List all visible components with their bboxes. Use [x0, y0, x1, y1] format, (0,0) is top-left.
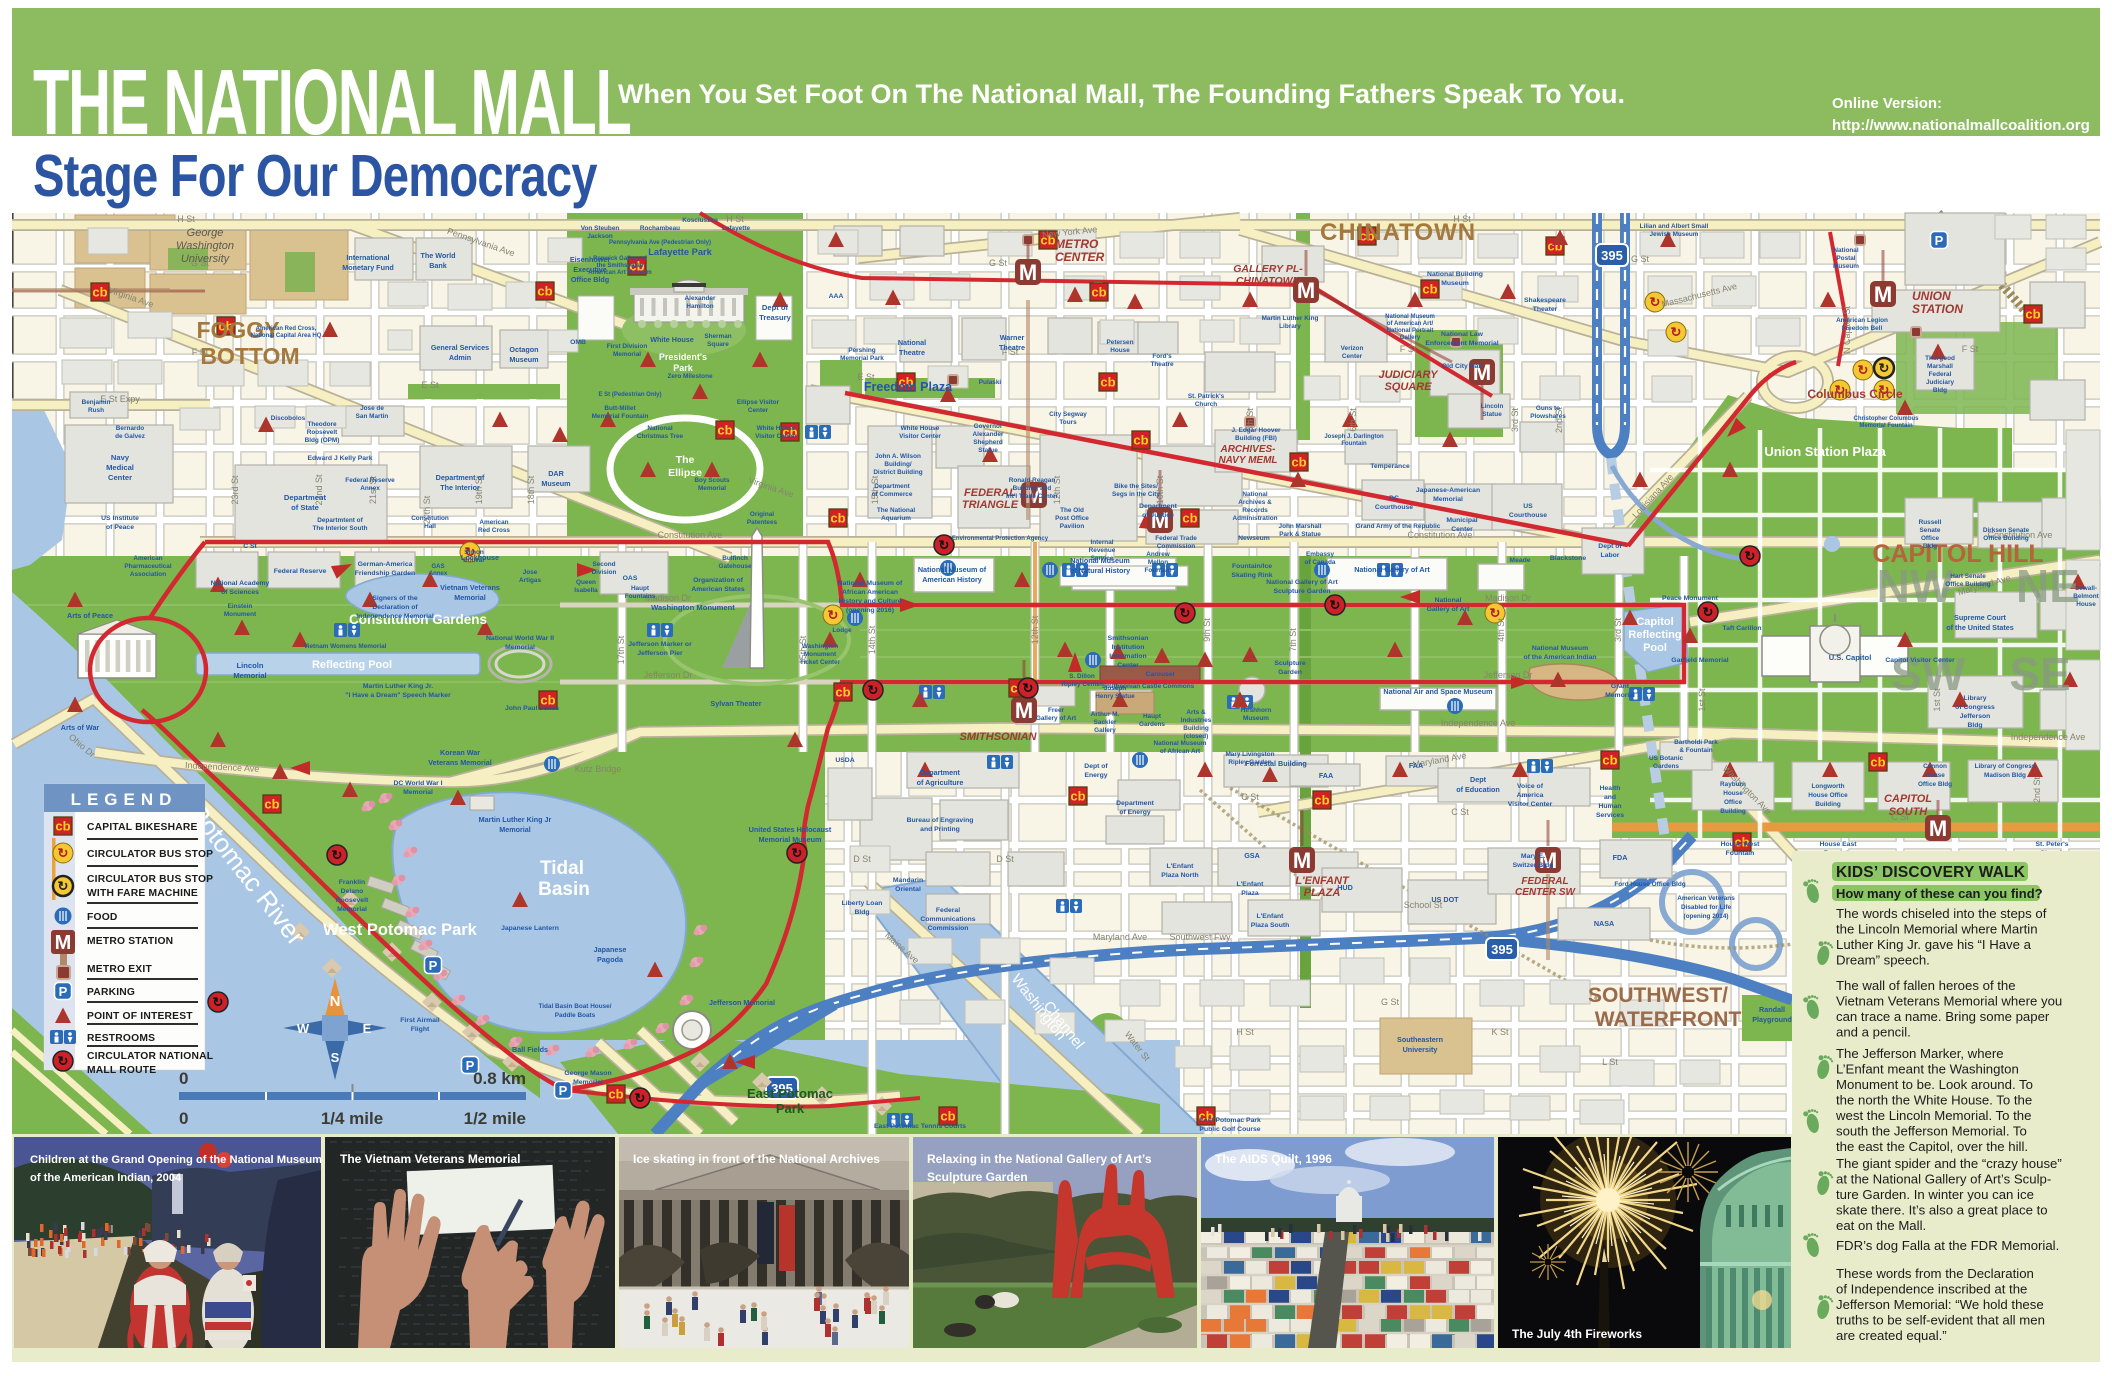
svg-text:Constitution Ave: Constitution Ave	[658, 530, 723, 540]
svg-text:Hall: Hall	[424, 523, 436, 530]
svg-text:Judiciary: Judiciary	[1926, 379, 1955, 386]
svg-text:House: House	[1723, 790, 1743, 797]
svg-text:CENTER SW: CENTER SW	[1515, 887, 1577, 898]
svg-text:Hart Senate: Hart Senate	[1950, 573, 1986, 580]
svg-text:John A. Wilson: John A. Wilson	[875, 453, 921, 460]
svg-text:F St: F St	[192, 347, 209, 357]
svg-text:Independence Ave: Independence Ave	[1441, 718, 1515, 728]
svg-text:Octagon: Octagon	[509, 345, 538, 354]
svg-text:Washington: Washington	[176, 240, 234, 252]
svg-text:Ford House Office Bldg: Ford House Office Bldg	[1614, 881, 1685, 888]
svg-text:Plaza North: Plaza North	[1161, 872, 1198, 879]
svg-text:Gallery: Gallery	[1400, 335, 1421, 341]
svg-text:Flight: Flight	[411, 1026, 430, 1033]
svg-text:23rd St: 23rd St	[230, 475, 240, 505]
svg-text:K St: K St	[1491, 1027, 1509, 1037]
svg-text:The Jefferson Marker, where: The Jefferson Marker, where	[1836, 1046, 2004, 1061]
svg-text:C St: C St	[243, 543, 257, 550]
svg-text:H St: H St	[1236, 1027, 1254, 1037]
svg-text:BOTTOM: BOTTOM	[200, 343, 299, 369]
svg-text:Bldg: Bldg	[1933, 387, 1947, 394]
svg-text:Mary Livingston: Mary Livingston	[1225, 751, 1274, 758]
svg-text:2nd St: 2nd St	[2032, 776, 2042, 803]
svg-text:Disabled for Life: Disabled for Life	[1681, 904, 1732, 911]
svg-text:Embassy: Embassy	[1306, 551, 1335, 558]
svg-text:Children at the Grand Opening: Children at the Grand Opening of the Nat…	[30, 1154, 322, 1166]
svg-text:Pershing: Pershing	[848, 347, 875, 354]
svg-text:Delano: Delano	[341, 888, 364, 895]
svg-text:Pennsylvania Ave (Pedestrian O: Pennsylvania Ave (Pedestrian Only)	[609, 240, 711, 246]
svg-text:Memorial: Memorial	[233, 671, 266, 680]
svg-text:Medical: Medical	[106, 463, 134, 472]
svg-text:FAA: FAA	[1319, 771, 1333, 780]
svg-text:Memorial: Memorial	[505, 644, 535, 651]
svg-text:Theodore: Theodore	[307, 421, 337, 428]
svg-text:GAS: GAS	[431, 564, 444, 570]
svg-text:Service: Service	[1091, 555, 1114, 562]
svg-text:Joseph J. Darlington: Joseph J. Darlington	[1324, 434, 1384, 440]
svg-text:C St: C St	[1891, 812, 1909, 822]
svg-text:SW: SW	[1891, 648, 1966, 700]
svg-text:DAR: DAR	[548, 469, 564, 478]
svg-text:Ripley Garden: Ripley Garden	[1228, 759, 1271, 766]
svg-text:Building: Building	[1720, 808, 1746, 815]
svg-text:George Mason: George Mason	[564, 1070, 611, 1077]
svg-text:National: National	[1435, 597, 1462, 604]
svg-text:Lincoln: Lincoln	[1481, 403, 1504, 410]
svg-text:Second: Second	[592, 561, 615, 568]
svg-text:Dream” speech.: Dream” speech.	[1836, 953, 1930, 968]
svg-text:Park: Park	[776, 1101, 805, 1116]
svg-text:The World: The World	[420, 251, 455, 260]
svg-text:Sewall-: Sewall-	[2075, 585, 2097, 592]
svg-text:Visitor Center: Visitor Center	[899, 433, 941, 440]
svg-text:Playground: Playground	[1752, 1015, 1792, 1024]
svg-text:Freedom Bell: Freedom Bell	[1842, 325, 1883, 332]
svg-text:First Airmail: First Airmail	[400, 1017, 440, 1024]
svg-text:Arts of War: Arts of War	[61, 723, 100, 732]
svg-text:E: E	[363, 1021, 372, 1036]
svg-text:Pulaski: Pulaski	[979, 379, 1002, 386]
svg-text:Vietnam Veterans Memorial wher: Vietnam Veterans Memorial where you	[1836, 994, 2062, 1009]
svg-text:National Museum: National Museum	[1154, 740, 1207, 747]
svg-text:City Segway: City Segway	[1049, 411, 1087, 418]
svg-text:The AIDS Quilt, 1996: The AIDS Quilt, 1996	[1215, 1152, 1332, 1166]
svg-text:Visitor Center: Visitor Center	[755, 433, 797, 440]
svg-text:John Marshall: John Marshall	[1279, 523, 1322, 530]
svg-text:Post Office: Post Office	[1055, 515, 1089, 522]
svg-text:Bldg: Bldg	[854, 909, 869, 916]
svg-text:Office: Office	[1724, 799, 1743, 806]
svg-text:American Red Cross,: American Red Cross,	[256, 326, 317, 332]
svg-text:J. Edgar Hoover: J. Edgar Hoover	[1231, 427, 1281, 434]
svg-text:University: University	[1403, 1045, 1438, 1054]
svg-text:Bartholdi Park: Bartholdi Park	[1674, 739, 1718, 746]
svg-text:The giant spider and the “craz: The giant spider and the “crazy house”	[1836, 1156, 2062, 1171]
svg-text:Museum: Museum	[509, 355, 538, 364]
svg-text:of Congress: of Congress	[1955, 704, 1995, 711]
svg-text:Building: Building	[1183, 725, 1209, 732]
svg-text:Einstein: Einstein	[228, 603, 253, 610]
svg-text:STATION: STATION	[1912, 302, 1963, 316]
svg-text:JUDICIARY: JUDICIARY	[1378, 369, 1439, 381]
svg-text:Statue: Statue	[978, 447, 998, 454]
svg-text:CIRCULATOR NATIONAL: CIRCULATOR NATIONAL	[87, 1051, 213, 1062]
svg-text:of Peace: of Peace	[106, 524, 134, 531]
svg-text:POINT OF INTEREST: POINT OF INTEREST	[87, 1011, 193, 1022]
svg-text:Office Bldg: Office Bldg	[1918, 781, 1952, 788]
svg-text:and Printing: and Printing	[920, 826, 960, 833]
svg-text:Grand Army of the Republic: Grand Army of the Republic	[1356, 523, 1441, 530]
svg-text:Bolivar: Bolivar	[463, 557, 485, 564]
svg-text:Bank: Bank	[429, 261, 447, 270]
svg-text:General Services: General Services	[431, 343, 489, 352]
svg-text:GALLERY PL-: GALLERY PL-	[1233, 263, 1303, 275]
svg-text:SOUTHWEST/: SOUTHWEST/	[1588, 984, 1728, 1007]
svg-text:M: M	[55, 932, 72, 954]
svg-text:US Institute: US Institute	[101, 515, 139, 522]
svg-text:Andrew: Andrew	[1146, 551, 1169, 558]
svg-text:Bldg (OPM): Bldg (OPM)	[305, 437, 340, 444]
svg-text:Arts &: Arts &	[1186, 709, 1206, 716]
svg-text:House: House	[1925, 772, 1945, 779]
svg-text:0: 0	[179, 1109, 188, 1128]
svg-text:Office Bldg: Office Bldg	[571, 275, 609, 284]
svg-text:The words chiseled into the st: The words chiseled into the steps of	[1836, 906, 2047, 921]
svg-text:The: The	[676, 454, 695, 466]
svg-text:Federal Trade: Federal Trade	[1155, 535, 1197, 542]
svg-text:Declaration of: Declaration of	[372, 604, 418, 611]
svg-text:NASA: NASA	[1594, 919, 1614, 928]
svg-text:Memorial: Memorial	[698, 485, 726, 492]
svg-text:Federal Reserve: Federal Reserve	[345, 477, 395, 484]
svg-text:at the National Gallery of Art: at the National Gallery of Art’s Sculp-	[1836, 1172, 2051, 1187]
svg-text:Garden: Garden	[1278, 669, 1302, 676]
svg-text:Simon: Simon	[464, 549, 484, 556]
svg-text:Center: Center	[1451, 526, 1473, 533]
svg-text:L’Enfant meant the Washington: L’Enfant meant the Washington	[1836, 1062, 2019, 1077]
svg-text:Dept of: Dept of	[1598, 543, 1622, 550]
svg-text:Henry Statue: Henry Statue	[1095, 693, 1135, 700]
svg-text:Revenue: Revenue	[1089, 547, 1116, 554]
svg-text:Theatre: Theatre	[1150, 361, 1174, 368]
svg-text:Bldg: Bldg	[1923, 543, 1937, 550]
svg-text:Union Station Plaza: Union Station Plaza	[1764, 444, 1886, 459]
svg-text:0: 0	[179, 1069, 188, 1088]
svg-text:Dept: Dept	[1470, 775, 1487, 784]
svg-text:Relaxing in the National Galle: Relaxing in the National Gallery of Art’…	[927, 1152, 1152, 1166]
svg-text:Services: Services	[1596, 812, 1624, 819]
svg-text:San Martin: San Martin	[356, 413, 389, 420]
svg-text:African American: African American	[842, 589, 898, 596]
svg-text:Martin Luther King Jr.: Martin Luther King Jr.	[363, 683, 433, 690]
svg-text:Sylvan Theater: Sylvan Theater	[710, 699, 761, 708]
svg-text:CIRCULATOR BUS STOP: CIRCULATOR BUS STOP	[87, 849, 213, 860]
svg-text:THE NATIONAL MALL: THE NATIONAL MALL	[33, 49, 631, 154]
svg-text:Peace Monument: Peace Monument	[1662, 595, 1719, 602]
svg-text:First Division: First Division	[607, 343, 648, 350]
svg-text:Tidal Basin Boat House/: Tidal Basin Boat House/	[538, 1003, 611, 1010]
svg-text:Martin Luther King: Martin Luther King	[1262, 315, 1319, 322]
svg-text:USDA: USDA	[835, 757, 854, 764]
svg-text:E St: E St	[857, 372, 875, 382]
svg-text:(opening 2016): (opening 2016)	[846, 607, 894, 614]
svg-text:National Gallery of Art: National Gallery of Art	[1266, 579, 1338, 586]
svg-text:Kutz Bridge: Kutz Bridge	[575, 764, 622, 774]
svg-text:Plaza South: Plaza South	[1251, 922, 1290, 929]
svg-text:East Potomac: East Potomac	[747, 1086, 833, 1101]
svg-text:Haupt: Haupt	[631, 585, 650, 592]
svg-text:St. Patrick's: St. Patrick's	[1188, 393, 1225, 400]
svg-text:12th St: 12th St	[1030, 615, 1040, 644]
svg-text:House: House	[2076, 601, 2096, 608]
svg-text:St. Peter's: St. Peter's	[2036, 841, 2069, 848]
svg-text:House West: House West	[1721, 841, 1761, 848]
svg-text:U.S. Capitol: U.S. Capitol	[1829, 653, 1872, 662]
svg-text:WATERFRONT: WATERFRONT	[1595, 1008, 1742, 1031]
svg-text:METRO: METRO	[1055, 237, 1099, 251]
svg-text:S. Dillon: S. Dillon	[1069, 673, 1095, 680]
svg-text:The Old: The Old	[1060, 507, 1084, 514]
svg-text:E St (Pedestrian Only): E St (Pedestrian Only)	[598, 392, 661, 398]
svg-text:Museum: Museum	[541, 479, 570, 488]
svg-text:Department: Department	[1139, 503, 1178, 510]
svg-text:Switzer Bldg: Switzer Bldg	[1513, 862, 1554, 869]
svg-text:Lincoln: Lincoln	[237, 661, 264, 670]
svg-text:National Gallery of Art: National Gallery of Art	[1354, 565, 1430, 574]
svg-text:Madison Bldg: Madison Bldg	[1984, 772, 2026, 779]
svg-text:Mandarin: Mandarin	[893, 877, 923, 884]
svg-text:WITH FARE MACHINE: WITH FARE MACHINE	[87, 888, 198, 899]
svg-text:President's: President's	[659, 352, 707, 362]
svg-text:G St: G St	[1631, 254, 1650, 264]
svg-text:ture Garden. In winter you ca: ture Garden. In winter you can ice	[1836, 1187, 2034, 1202]
svg-text:Pavilion: Pavilion	[1060, 523, 1085, 530]
svg-text:NE: NE	[2016, 560, 2080, 612]
svg-text:0.8 km: 0.8 km	[473, 1069, 526, 1088]
svg-text:Plowshares: Plowshares	[1530, 413, 1566, 420]
svg-text:Library of Congress: Library of Congress	[1975, 763, 2036, 770]
svg-text:of the American Indian, 2004: of the American Indian, 2004	[30, 1172, 182, 1184]
svg-text:of Energy: of Energy	[1119, 809, 1151, 816]
svg-text:Japanese: Japanese	[594, 945, 627, 954]
svg-text:West Potomac Park: West Potomac Park	[323, 921, 478, 939]
svg-text:Jewish Museum: Jewish Museum	[1649, 231, 1698, 238]
svg-text:The National: The National	[877, 507, 916, 514]
svg-text:and: and	[1604, 794, 1616, 801]
svg-text:German-America: German-America	[358, 561, 413, 568]
svg-text:Renwick Gallery of: Renwick Gallery of	[593, 256, 648, 262]
svg-text:Bike the Sites/: Bike the Sites/	[1114, 483, 1158, 490]
svg-text:Tours: Tours	[1059, 419, 1077, 426]
svg-text:American Art Museum: American Art Museum	[588, 270, 651, 276]
svg-text:Voice of: Voice of	[1517, 783, 1544, 790]
svg-text:FEDERAL: FEDERAL	[1521, 876, 1568, 887]
svg-text:Guns to: Guns to	[1536, 405, 1560, 412]
svg-text:Zero Milestone: Zero Milestone	[667, 373, 713, 380]
svg-text:Jose de: Jose de	[360, 405, 384, 412]
svg-text:GSA: GSA	[1244, 851, 1260, 860]
svg-text:CAPITOL: CAPITOL	[1884, 793, 1932, 805]
svg-text:TRIANGLE: TRIANGLE	[962, 499, 1019, 511]
svg-text:D St: D St	[996, 854, 1014, 864]
svg-text:Building (FBI): Building (FBI)	[1235, 435, 1277, 442]
svg-text:Records: Records	[1242, 507, 1268, 514]
svg-text:National Law: National Law	[1441, 331, 1484, 338]
svg-text:L'Enfant: L'Enfant	[1237, 881, 1265, 888]
svg-text:of Justice: of Justice	[1142, 512, 1174, 519]
svg-text:of State: of State	[291, 503, 319, 512]
svg-text:Visitor Center: Visitor Center	[1508, 801, 1553, 808]
svg-text:Memorial: Memorial	[403, 789, 433, 796]
svg-text:Park: Park	[673, 363, 694, 373]
svg-text:Library: Library	[1279, 323, 1301, 330]
svg-text:Warner: Warner	[1000, 333, 1025, 342]
svg-text:Vietnam Womens Memorial: Vietnam Womens Memorial	[304, 643, 387, 650]
svg-text:Rush: Rush	[88, 407, 104, 414]
svg-text:Edward J Kelly Park: Edward J Kelly Park	[308, 455, 373, 462]
svg-text:MALL ROUTE: MALL ROUTE	[87, 1065, 156, 1076]
svg-text:Skating Rink: Skating Rink	[1231, 572, 1272, 579]
svg-text:Fountain: Fountain	[1341, 441, 1367, 447]
svg-text:Information: Information	[1109, 653, 1146, 660]
svg-text:of African Art: of African Art	[1160, 748, 1201, 755]
svg-text:Dept of: Dept of	[1084, 763, 1108, 770]
svg-text:of the American Indian: of the American Indian	[1523, 654, 1596, 661]
svg-text:Kosciuszko: Kosciuszko	[682, 217, 718, 224]
svg-text:East Potomac Tennis Courts: East Potomac Tennis Courts	[874, 1123, 966, 1130]
svg-text:Museum: Museum	[1833, 263, 1859, 270]
svg-text:NW: NW	[1877, 560, 1954, 612]
svg-text:C St: C St	[1241, 792, 1259, 802]
svg-text:1st St: 1st St	[1932, 688, 1942, 712]
svg-text:US: US	[1523, 503, 1533, 510]
svg-text:Temperance: Temperance	[1370, 463, 1410, 470]
svg-text:US Botanic: US Botanic	[1649, 755, 1684, 762]
svg-text:Enforcement Memorial: Enforcement Memorial	[1425, 340, 1498, 347]
svg-text:Association: Association	[130, 571, 166, 578]
svg-text:Tidal: Tidal	[540, 858, 584, 879]
svg-text:Memorial: Memorial	[613, 351, 641, 358]
svg-text:Discobolos: Discobolos	[271, 415, 306, 422]
svg-text:Petersen: Petersen	[1107, 339, 1134, 346]
svg-text:1/4 mile: 1/4 mile	[321, 1109, 383, 1128]
svg-text:Commission: Commission	[1157, 543, 1195, 550]
svg-text:Ford's: Ford's	[1152, 353, 1172, 360]
svg-text:the Smithsonian: the Smithsonian	[597, 263, 644, 269]
svg-text:C St: C St	[1451, 807, 1469, 817]
svg-text:Annex: Annex	[429, 571, 448, 577]
svg-text:Sculpture Garden: Sculpture Garden	[927, 1170, 1028, 1184]
svg-text:Int'l Trade Center: Int'l Trade Center	[1006, 493, 1058, 500]
svg-text:Energy: Energy	[1084, 772, 1107, 779]
svg-text:Reflecting Pool: Reflecting Pool	[312, 659, 392, 671]
svg-text:9th St: 9th St	[1202, 618, 1212, 642]
svg-text:National Portrait: National Portrait	[1387, 328, 1434, 334]
svg-text:National Academy: National Academy	[211, 580, 270, 587]
svg-text:Friendship Garden: Friendship Garden	[355, 570, 415, 577]
svg-text:Memorial Museum: Memorial Museum	[759, 835, 822, 844]
svg-text:METRO STATION: METRO STATION	[87, 936, 173, 947]
svg-text:eat on the Mall.: eat on the Mall.	[1836, 1218, 1926, 1233]
svg-text:Taft Carillon: Taft Carillon	[1722, 625, 1761, 632]
svg-text:OMB: OMB	[570, 339, 586, 346]
svg-text:Japanese-American: Japanese-American	[1416, 487, 1480, 494]
svg-text:Ripley Center: Ripley Center	[1061, 681, 1103, 688]
svg-text:Alexander: Alexander	[973, 431, 1004, 438]
svg-text:Vietnam Veterans: Vietnam Veterans	[440, 583, 500, 592]
svg-text:Labor: Labor	[1601, 552, 1620, 559]
svg-text:of Education: of Education	[1456, 785, 1500, 794]
svg-text:Veterans Memorial: Veterans Memorial	[428, 758, 492, 767]
svg-text:HUD: HUD	[1337, 883, 1353, 892]
svg-text:PLAZA: PLAZA	[1304, 887, 1341, 899]
svg-text:Theatre: Theatre	[899, 348, 925, 357]
svg-text:Hirshhorn: Hirshhorn	[1241, 707, 1272, 714]
svg-text:skate there. It’s also a grea: skate there. It’s also a great place to	[1836, 1203, 2048, 1218]
svg-text:L St: L St	[1602, 1057, 1618, 1067]
svg-text:FAA: FAA	[1409, 761, 1423, 770]
svg-text:F St: F St	[1962, 344, 1979, 354]
svg-text:L'Enfant: L'Enfant	[1167, 863, 1195, 870]
svg-text:LEGEND: LEGEND	[71, 790, 178, 809]
svg-text:of Sciences: of Sciences	[221, 589, 259, 596]
svg-text:White House: White House	[650, 335, 694, 344]
svg-text:Jefferson Memorial: Jefferson Memorial	[709, 998, 775, 1007]
svg-text:How many of these can you find: How many of these can you find?	[1836, 886, 2043, 901]
svg-text:18th St: 18th St	[526, 475, 536, 504]
svg-text:W: W	[297, 1021, 310, 1036]
svg-text:can trace a name. Bring some: can trace a name. Bring some paper	[1836, 1009, 2050, 1024]
svg-text:of American Art/: of American Art/	[1387, 321, 1434, 327]
svg-text:National Air and Space Museum: National Air and Space Museum	[1383, 687, 1492, 696]
svg-text:Red Cross: Red Cross	[478, 527, 510, 534]
svg-text:Freer: Freer	[1048, 707, 1064, 714]
svg-text:Department of: Department of	[436, 473, 485, 482]
svg-text:Ice skating in front of the Na: Ice skating in front of the National Arc…	[633, 1152, 880, 1166]
svg-text:American Veterans: American Veterans	[1677, 895, 1735, 902]
svg-text:of Agriculture: of Agriculture	[917, 778, 964, 787]
svg-text:Environmental Protection Agenc: Environmental Protection Agency	[952, 536, 1049, 542]
svg-text:American: American	[133, 555, 162, 562]
svg-text:National: National	[898, 338, 926, 347]
svg-text:Departmtent of: Departmtent of	[317, 517, 363, 524]
svg-text:Lafayette: Lafayette	[722, 225, 751, 232]
svg-text:Department: Department	[284, 493, 327, 502]
svg-text:Bulfinch: Bulfinch	[722, 555, 748, 562]
svg-text:National: National	[647, 425, 672, 432]
svg-text:Madison Dr: Madison Dr	[1485, 593, 1531, 603]
svg-text:Memorial: Memorial	[499, 825, 531, 834]
svg-text:Archives &: Archives &	[1238, 499, 1272, 506]
svg-text:Jackson: Jackson	[587, 233, 613, 240]
svg-text:the Lincoln Memorial where Mar: the Lincoln Memorial where Martin	[1836, 922, 2038, 937]
svg-text:United States Holocaust: United States Holocaust	[749, 825, 832, 834]
svg-text:are created equal.”: are created equal.”	[1836, 1328, 1947, 1343]
svg-text:Garfield Memorial: Garfield Memorial	[1671, 657, 1729, 664]
svg-text:FDR’s dog Falla at the FDR Mem: FDR’s dog Falla at the FDR Memorial.	[1836, 1238, 2059, 1253]
svg-text:National World War II: National World War II	[486, 635, 554, 642]
svg-text:south the Jefferson Memorial.: south the Jefferson Memorial. To	[1836, 1124, 2027, 1139]
svg-text:Blackstone: Blackstone	[1550, 555, 1586, 562]
svg-text:Marshall: Marshall	[1927, 363, 1953, 370]
svg-text:14th St: 14th St	[867, 625, 877, 654]
svg-text:Fountains: Fountains	[625, 593, 656, 600]
svg-text:Carousel: Carousel	[1145, 671, 1174, 678]
svg-text:the east the Capitol, over the: the east the Capitol, over the hill.	[1836, 1139, 2028, 1154]
svg-text:Admin: Admin	[449, 353, 471, 362]
svg-text:E St: E St	[421, 380, 439, 390]
